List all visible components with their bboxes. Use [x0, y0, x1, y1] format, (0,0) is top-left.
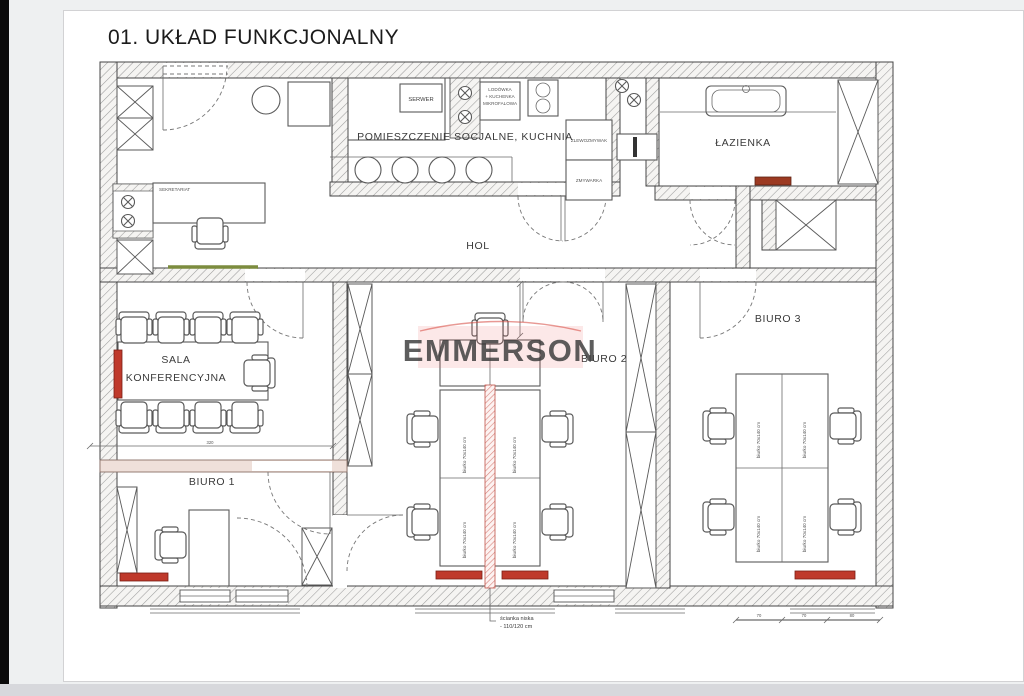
watermark-text: EMMERSON [403, 333, 598, 368]
low-wall-divider [485, 385, 495, 588]
secretariat-label: SEKRETARIAT [159, 187, 190, 192]
hob-icon [459, 87, 472, 100]
valve-icon [628, 94, 641, 107]
radiator [502, 571, 548, 579]
radiator [436, 571, 482, 579]
office3-label: BIURO 3 [755, 313, 801, 325]
fridge-label-1: LODÓWKA [488, 86, 512, 92]
fridge-label-3: MIKROFALOWA [483, 101, 518, 106]
stool [429, 157, 455, 183]
valve-icon [122, 215, 135, 228]
hob-icon [459, 111, 472, 124]
office-chair [155, 527, 186, 563]
floor-plan-canvas: 01. UKŁAD FUNKCJONALNY [0, 0, 1024, 696]
dim-label: 80 [850, 613, 855, 618]
office-chair [703, 408, 734, 444]
desk-size-label: biurko 70x140 cm [512, 522, 517, 558]
office1-label: BIURO 1 [189, 476, 235, 488]
kitchen-label: POMIESZCZENIE SOCJALNE, KUCHNIA [357, 131, 573, 143]
chair [190, 312, 226, 343]
round-table [252, 86, 280, 114]
radiator [120, 573, 168, 581]
valve-icon [122, 196, 135, 209]
office-chair [407, 504, 438, 540]
low-wall-note-1: ścianka niska [500, 616, 534, 622]
radiator [114, 350, 122, 398]
conference-room: SALA KONFERENCYJNA 320 [87, 312, 336, 449]
chair [116, 402, 152, 433]
desk-size-label: biurko 70x140 cm [462, 437, 467, 473]
office3-area: BIURO 3 biurko 70x140 cm biurko 70x140 c… [703, 313, 861, 579]
bathroom-radiator [755, 177, 791, 185]
office-chair [192, 218, 228, 249]
server-room-label: SERWER [408, 97, 433, 103]
chair [244, 355, 275, 391]
chair [227, 312, 263, 343]
chair [116, 312, 152, 343]
stool [392, 157, 418, 183]
office-chair [703, 499, 734, 535]
chair [153, 312, 189, 343]
radiator [795, 571, 855, 579]
desk-size-label: biurko 70x140 cm [462, 522, 467, 558]
desk-size-label: biurko 70x140 cm [512, 437, 517, 473]
bathroom-area: ŁAZIENKA [660, 86, 836, 186]
secretariat-area: SEKRETARIAT [153, 82, 330, 249]
office-chair [542, 411, 573, 447]
conference-label-1: SALA [161, 354, 190, 366]
office-chair [830, 408, 861, 444]
office-chair [407, 411, 438, 447]
stool [355, 157, 381, 183]
dishwasher-label: ZMYWARKA [576, 178, 603, 183]
stove [528, 80, 558, 116]
utility-niche [113, 184, 153, 238]
fridge-label-2: + KUCHENKA [485, 94, 515, 99]
desk [189, 510, 229, 586]
office-chair [830, 499, 861, 535]
emmerson-watermark: EMMERSON [403, 322, 598, 369]
cabinet [288, 82, 330, 126]
desk-size-label: biurko 70x140 cm [802, 516, 807, 552]
chair [190, 402, 226, 433]
chair [153, 402, 189, 433]
low-wall-note-2: - 110/120 cm [500, 624, 533, 630]
office-chair [542, 504, 573, 540]
bathroom-label: ŁAZIENKA [715, 137, 771, 149]
conference-label-2: KONFERENCYJNA [126, 372, 227, 384]
floor-plan-drawing: SEKRETARIAT SERWER LODÓWKA + KUCHENKA MI… [0, 0, 1024, 696]
dim-label: 70 [802, 613, 807, 618]
conference-dim: 320 [207, 440, 215, 445]
chair [227, 402, 263, 433]
desk-size-label: biurko 70x140 cm [756, 516, 761, 552]
valve-icon [616, 80, 629, 93]
stool [466, 157, 492, 183]
desk-size-label: biurko 70x140 cm [756, 422, 761, 458]
sink-label: ZLEWOZMYWAK [571, 138, 608, 143]
dim-label: 70 [757, 613, 762, 618]
hall-label: HOL [466, 240, 489, 252]
desk-size-label: biurko 70x140 cm [802, 422, 807, 458]
